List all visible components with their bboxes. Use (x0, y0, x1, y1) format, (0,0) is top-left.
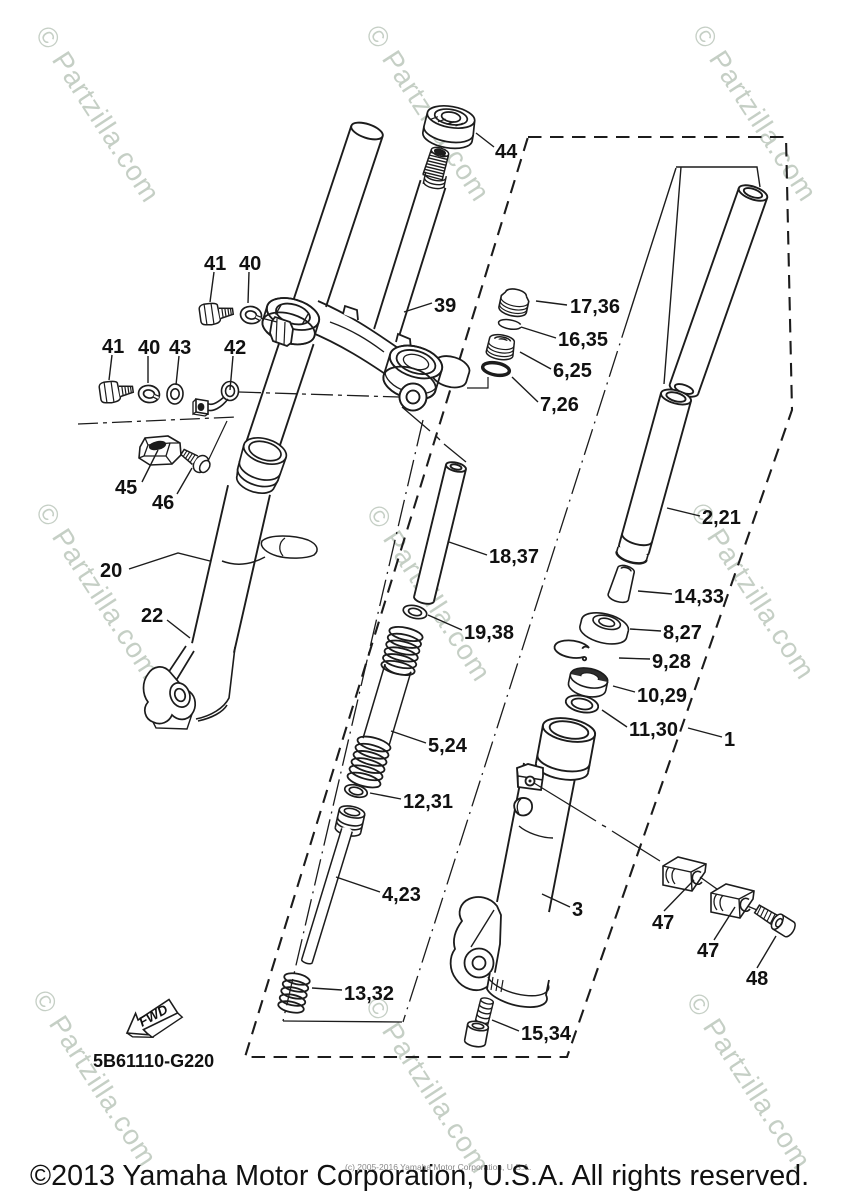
svg-text:4,23: 4,23 (382, 884, 421, 906)
svg-text:2,21: 2,21 (702, 507, 741, 529)
svg-text:48: 48 (746, 968, 768, 990)
svg-text:5B61110-G220: 5B61110-G220 (93, 1051, 214, 1071)
svg-text:47: 47 (697, 940, 719, 962)
svg-text:40: 40 (239, 253, 261, 275)
svg-text:9,28: 9,28 (652, 651, 691, 673)
svg-text:19,38: 19,38 (464, 622, 514, 644)
svg-text:© Partzilla.com: © Partzilla.com (30, 20, 167, 208)
svg-text:6,25: 6,25 (553, 360, 592, 382)
svg-text:15,34: 15,34 (521, 1023, 572, 1045)
svg-text:46: 46 (152, 492, 174, 514)
svg-text:©2013 Yamaha Motor Corporation: ©2013 Yamaha Motor Corporation, U.S.A. A… (30, 1160, 809, 1192)
svg-text:44: 44 (495, 141, 518, 163)
svg-text:13,32: 13,32 (344, 983, 394, 1005)
svg-text:41: 41 (102, 336, 124, 358)
svg-text:© Partzilla.com: © Partzilla.com (30, 497, 167, 685)
svg-text:8,27: 8,27 (663, 622, 702, 644)
svg-text:47: 47 (652, 912, 674, 934)
svg-text:45: 45 (115, 477, 137, 499)
svg-text:10,29: 10,29 (637, 685, 687, 707)
svg-text:5,24: 5,24 (428, 735, 468, 757)
svg-text:40: 40 (138, 337, 160, 359)
svg-text:12,31: 12,31 (403, 791, 453, 813)
svg-text:22: 22 (141, 605, 163, 627)
svg-text:© Partzilla.com: © Partzilla.com (687, 19, 824, 207)
svg-text:39: 39 (434, 295, 456, 317)
svg-text:7,26: 7,26 (540, 394, 579, 416)
svg-text:42: 42 (224, 337, 246, 359)
svg-text:3: 3 (572, 899, 583, 921)
svg-text:18,37: 18,37 (489, 546, 539, 568)
svg-text:43: 43 (169, 337, 191, 359)
svg-text:16,35: 16,35 (558, 329, 608, 351)
svg-text:14,33: 14,33 (674, 586, 724, 608)
svg-text:17,36: 17,36 (570, 296, 620, 318)
svg-text:11,30: 11,30 (629, 719, 678, 741)
svg-text:41: 41 (204, 253, 226, 275)
svg-text:20: 20 (100, 560, 122, 582)
svg-text:1: 1 (724, 729, 735, 751)
svg-text:© Partzilla.com: © Partzilla.com (681, 987, 818, 1175)
